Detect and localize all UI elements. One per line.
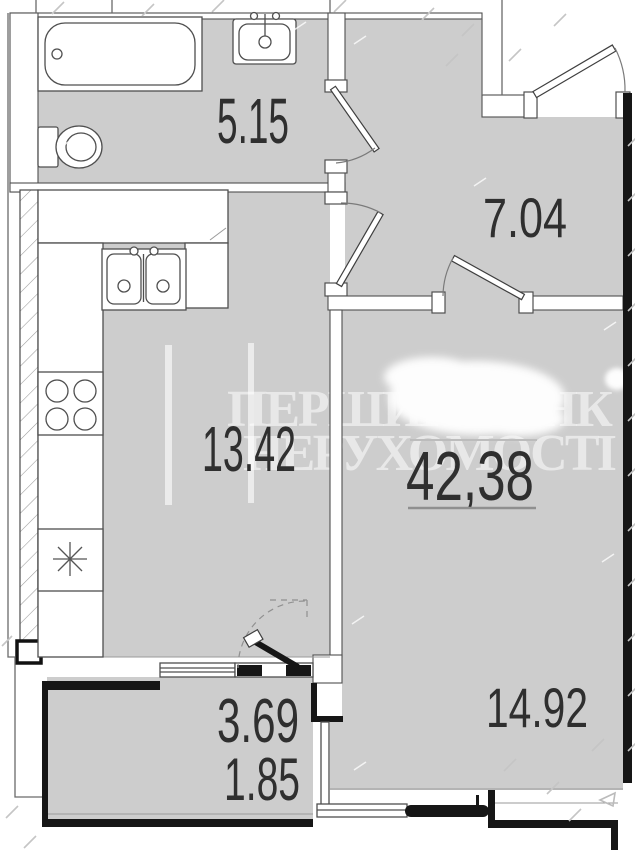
balcony-top-wall <box>42 681 160 690</box>
balcony-right-wall <box>311 716 343 722</box>
toilet <box>38 126 102 168</box>
total-area-label: 42,38 <box>406 437 534 515</box>
snowflake-icon <box>53 542 87 576</box>
bathroom-left-wall <box>10 13 38 192</box>
balcony-bottom-wall <box>42 819 313 827</box>
bathroom-hall-wall <box>328 13 345 90</box>
floor-plan: ПЕРШИЙ БАНК НЕРУХОМОСТІ 5.15 7.04 13.42 … <box>0 0 635 850</box>
bottom-step-wall <box>488 820 618 828</box>
bottom-step-wall <box>611 820 618 850</box>
balcony-left-wall <box>42 681 48 827</box>
balcony-door-sill <box>286 665 311 676</box>
hall-bedroom-wall <box>328 296 443 310</box>
hall-bedroom-wall <box>521 296 623 310</box>
balcony-area-label-2: 1.85 <box>224 746 300 813</box>
hallway-floor <box>345 19 623 296</box>
door-jamb <box>325 192 347 204</box>
balcony-door-sill <box>237 665 262 676</box>
hallway-area-label: 7.04 <box>483 186 567 249</box>
watermark-bar <box>165 345 172 505</box>
door-jamb <box>325 283 347 296</box>
refrigerator <box>38 529 103 591</box>
kitchen-bedroom-wall <box>330 310 342 657</box>
bedroom-corner-window <box>321 722 329 806</box>
floor-plan-page: ПЕРШИЙ БАНК НЕРУХОМОСТІ 5.15 7.04 13.42 … <box>0 0 635 850</box>
balcony-window <box>160 663 235 677</box>
entrance-door <box>533 45 625 98</box>
window-mark <box>476 795 479 805</box>
washbasin <box>233 13 296 65</box>
bathroom-area-label: 5.15 <box>217 85 289 157</box>
kitchen-sink <box>102 247 186 310</box>
wall-corner-block <box>313 655 342 683</box>
bathtub <box>38 17 202 91</box>
right-outer-wall <box>623 93 632 783</box>
stove <box>38 372 103 435</box>
kitchen-area-label: 13.42 <box>202 413 296 485</box>
bedroom-area-label: 14.92 <box>486 676 588 739</box>
bedroom-window <box>405 805 489 817</box>
